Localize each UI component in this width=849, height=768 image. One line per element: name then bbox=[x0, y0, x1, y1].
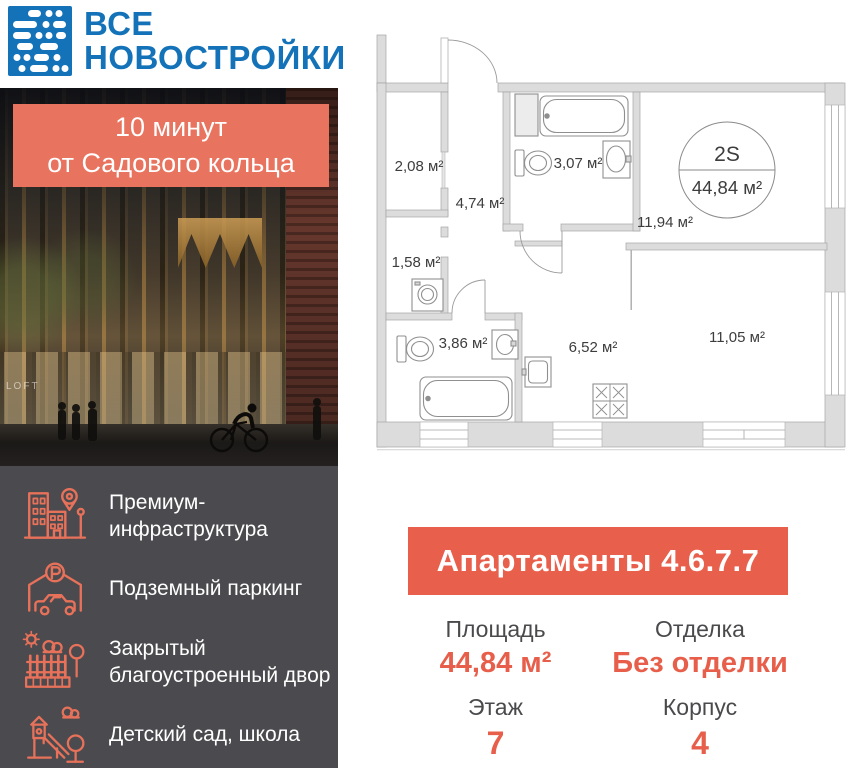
stat-value: 4 bbox=[557, 725, 843, 762]
room-area-label: 11,94 м² bbox=[637, 214, 693, 231]
brand-name-line2: НОВОСТРОЙКИ bbox=[84, 41, 346, 75]
room-area-label: 3,07 м² bbox=[554, 155, 603, 172]
room-area-label: 1,58 м² bbox=[392, 254, 441, 271]
feature-closed-yard: Закрытый благоустроенный двор bbox=[0, 626, 338, 699]
location-badge-line2: от Садового кольца bbox=[47, 146, 295, 182]
feature-label: Подземный паркинг bbox=[109, 576, 338, 602]
feature-label: Премиум-инфраструктура bbox=[109, 490, 338, 543]
brand-logo[interactable]: ВСЕ НОВОСТРОЙКИ bbox=[8, 6, 346, 76]
feature-premium-infrastructure: Премиум-инфраструктура bbox=[0, 480, 338, 553]
listing-card: ВСЕ НОВОСТРОЙКИ LOFT 10 ми bbox=[0, 0, 849, 768]
floor-plan: 2S 44,84 м² 2,08 м² 4,74 м² 3,07 м² 11,9… bbox=[375, 30, 849, 460]
street-scene bbox=[0, 378, 338, 458]
brand-logo-icon bbox=[8, 6, 72, 76]
feature-label: Детский сад, школа bbox=[109, 722, 338, 748]
brand-name-line1: ВСЕ bbox=[84, 7, 346, 41]
unit-type-label: 2S bbox=[714, 143, 740, 166]
feature-kindergarten-school: Детский сад, школа bbox=[0, 699, 338, 768]
stat-value: Без отделки bbox=[557, 647, 843, 680]
stat-label: Отделка bbox=[557, 616, 843, 643]
location-badge: 10 минут от Садового кольца bbox=[13, 104, 329, 187]
kindergarten-school-icon bbox=[15, 701, 95, 768]
brand-name: ВСЕ НОВОСТРОЙКИ bbox=[84, 7, 346, 74]
room-area-label: 11,05 м² bbox=[709, 329, 765, 346]
underground-parking-icon bbox=[15, 555, 95, 625]
room-area-label: 6,52 м² bbox=[569, 339, 618, 356]
feature-label: Закрытый благоустроенный двор bbox=[109, 636, 338, 689]
closed-yard-icon bbox=[15, 628, 95, 698]
building-photo: LOFT 10 минут от Садового кольца bbox=[0, 88, 338, 466]
premium-infrastructure-icon bbox=[15, 482, 95, 552]
stat-building: Корпус 4 bbox=[557, 694, 843, 762]
feature-underground-parking: Подземный паркинг bbox=[0, 553, 338, 626]
cyclist-silhouette bbox=[211, 414, 267, 451]
room-area-label: 4,74 м² bbox=[456, 195, 505, 212]
location-badge-line1: 10 минут bbox=[115, 110, 227, 146]
apartment-title: Апартаменты 4.6.7.7 bbox=[437, 543, 760, 579]
apartment-title-banner: Апартаменты 4.6.7.7 bbox=[408, 527, 788, 595]
stat-finishing: Отделка Без отделки bbox=[557, 616, 843, 680]
room-area-label: 3,86 м² bbox=[439, 335, 488, 352]
unit-total-area-label: 44,84 м² bbox=[692, 177, 762, 198]
room-area-label: 2,08 м² bbox=[395, 158, 444, 175]
stat-label: Корпус bbox=[557, 694, 843, 721]
loft-signage: LOFT bbox=[6, 381, 40, 392]
features-panel: Премиум-инфраструктура Подземный паркинг bbox=[0, 466, 338, 768]
